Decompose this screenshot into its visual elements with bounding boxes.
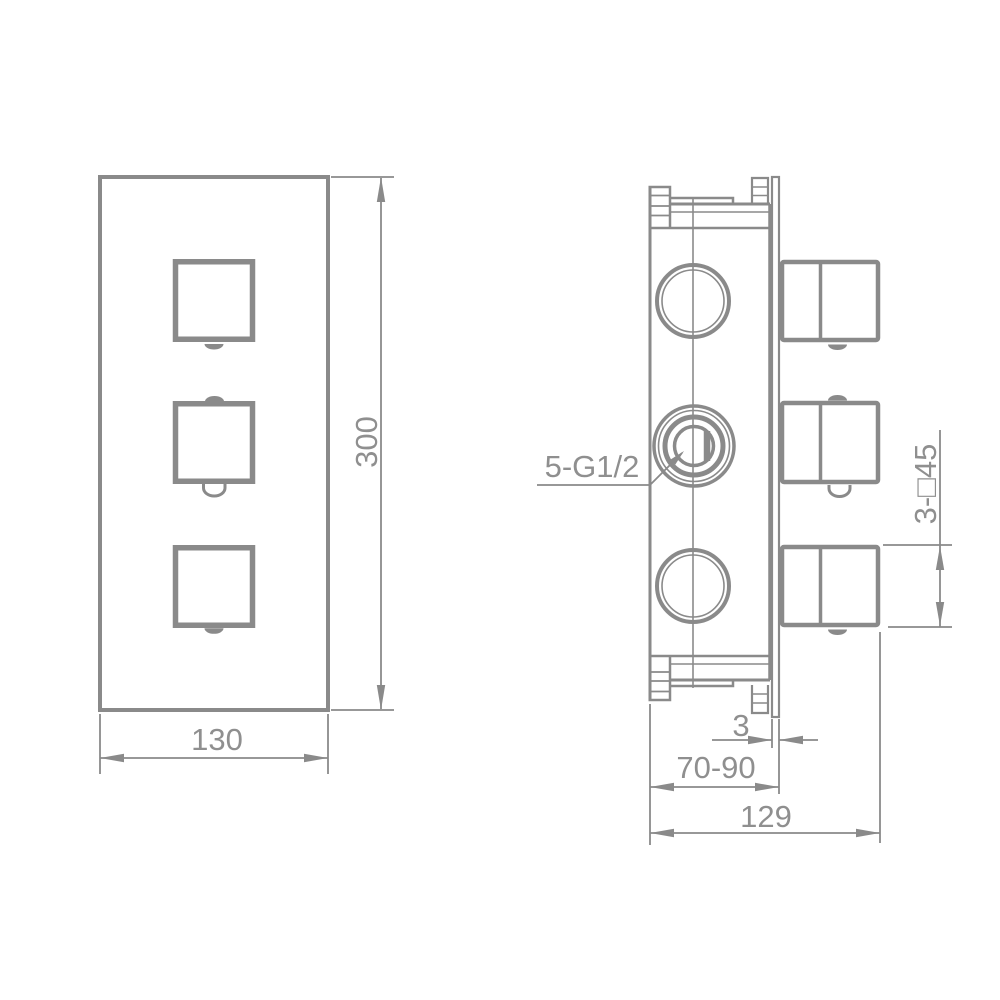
arrowhead-right	[755, 783, 779, 791]
handles-side	[782, 262, 878, 635]
handle-side-bottom	[782, 547, 878, 625]
bottom-clip-ticks	[752, 694, 768, 703]
label-text-5-G12: 5-G1/2	[545, 449, 640, 484]
arrowhead-up	[936, 546, 944, 570]
bottom-column-ticks	[650, 672, 670, 692]
dim-text-70-90: 70-90	[676, 750, 755, 785]
arrowhead-left	[779, 736, 803, 744]
arrowhead-down	[936, 602, 944, 626]
arrowhead-left	[100, 754, 124, 762]
dim-text-3-sq45: 3-□45	[908, 444, 943, 525]
handle-square-top	[176, 262, 253, 340]
dim-text-3: 3	[732, 708, 749, 743]
bottom-clip	[752, 685, 768, 713]
dimension-handle-45: 3-□45	[883, 430, 952, 627]
dim-text-130: 130	[191, 722, 243, 757]
top-clip	[752, 178, 768, 204]
arrowhead-right	[748, 736, 772, 744]
safety-button-side	[829, 485, 850, 497]
dim-text-300: 300	[349, 416, 384, 468]
arrowhead-up	[377, 177, 385, 202]
handle-side-top-notch	[828, 345, 847, 351]
dimension-width-130: 130	[100, 714, 328, 774]
handle-side-top	[782, 262, 878, 340]
port-circle-middle-ring	[659, 411, 730, 482]
handle-square-middle	[176, 404, 253, 482]
front-view: 130 300	[100, 177, 394, 774]
arrowhead-right	[856, 829, 880, 837]
arrowhead-left	[650, 829, 674, 837]
trim-plate-side	[772, 177, 779, 717]
handle-side-middle	[782, 403, 878, 482]
technical-drawing: 130 300	[0, 0, 1000, 1000]
drawing-canvas: 130 300	[0, 0, 1000, 1000]
valve-body	[649, 178, 771, 713]
arrowhead-right	[304, 754, 328, 762]
handle-side-middle-notch	[828, 395, 847, 401]
top-clip-ticks	[752, 187, 768, 196]
handle-side-bottom-notch	[828, 630, 847, 636]
dimension-height-300: 300	[331, 177, 394, 710]
arrowhead-down	[377, 685, 385, 710]
dim-text-129: 129	[740, 799, 792, 834]
top-column	[649, 187, 671, 228]
top-column-ticks	[650, 196, 670, 216]
handle-square-bottom	[176, 548, 253, 626]
bottom-column	[649, 656, 671, 700]
arrowhead-left	[650, 783, 674, 791]
safety-button	[204, 484, 226, 496]
side-view: 5-G1/2 3-□45 3	[537, 177, 952, 845]
